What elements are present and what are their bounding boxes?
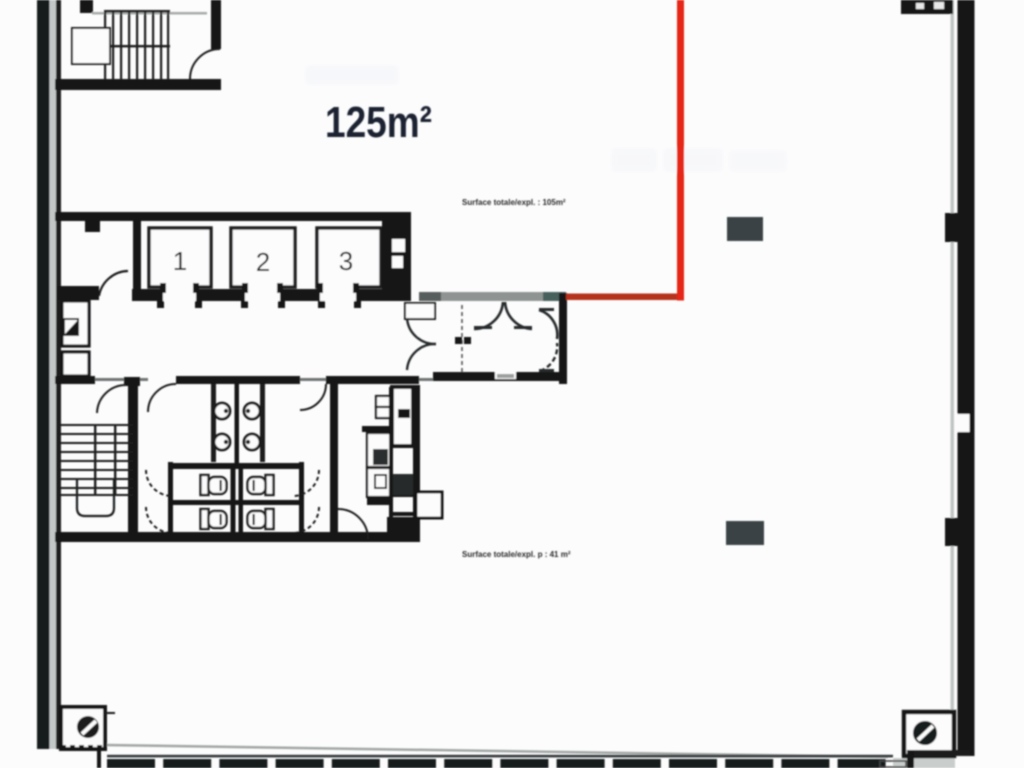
svg-text:2: 2 [256,247,270,277]
svg-text:125m²: 125m² [325,98,432,147]
svg-text:3: 3 [339,246,353,276]
svg-text:Surface totale/expl. p : 41 m²: Surface totale/expl. p : 41 m² [462,550,571,559]
svg-text:1: 1 [173,246,187,276]
svg-text:Surface totale/expl. : 105m²: Surface totale/expl. : 105m² [462,198,566,207]
